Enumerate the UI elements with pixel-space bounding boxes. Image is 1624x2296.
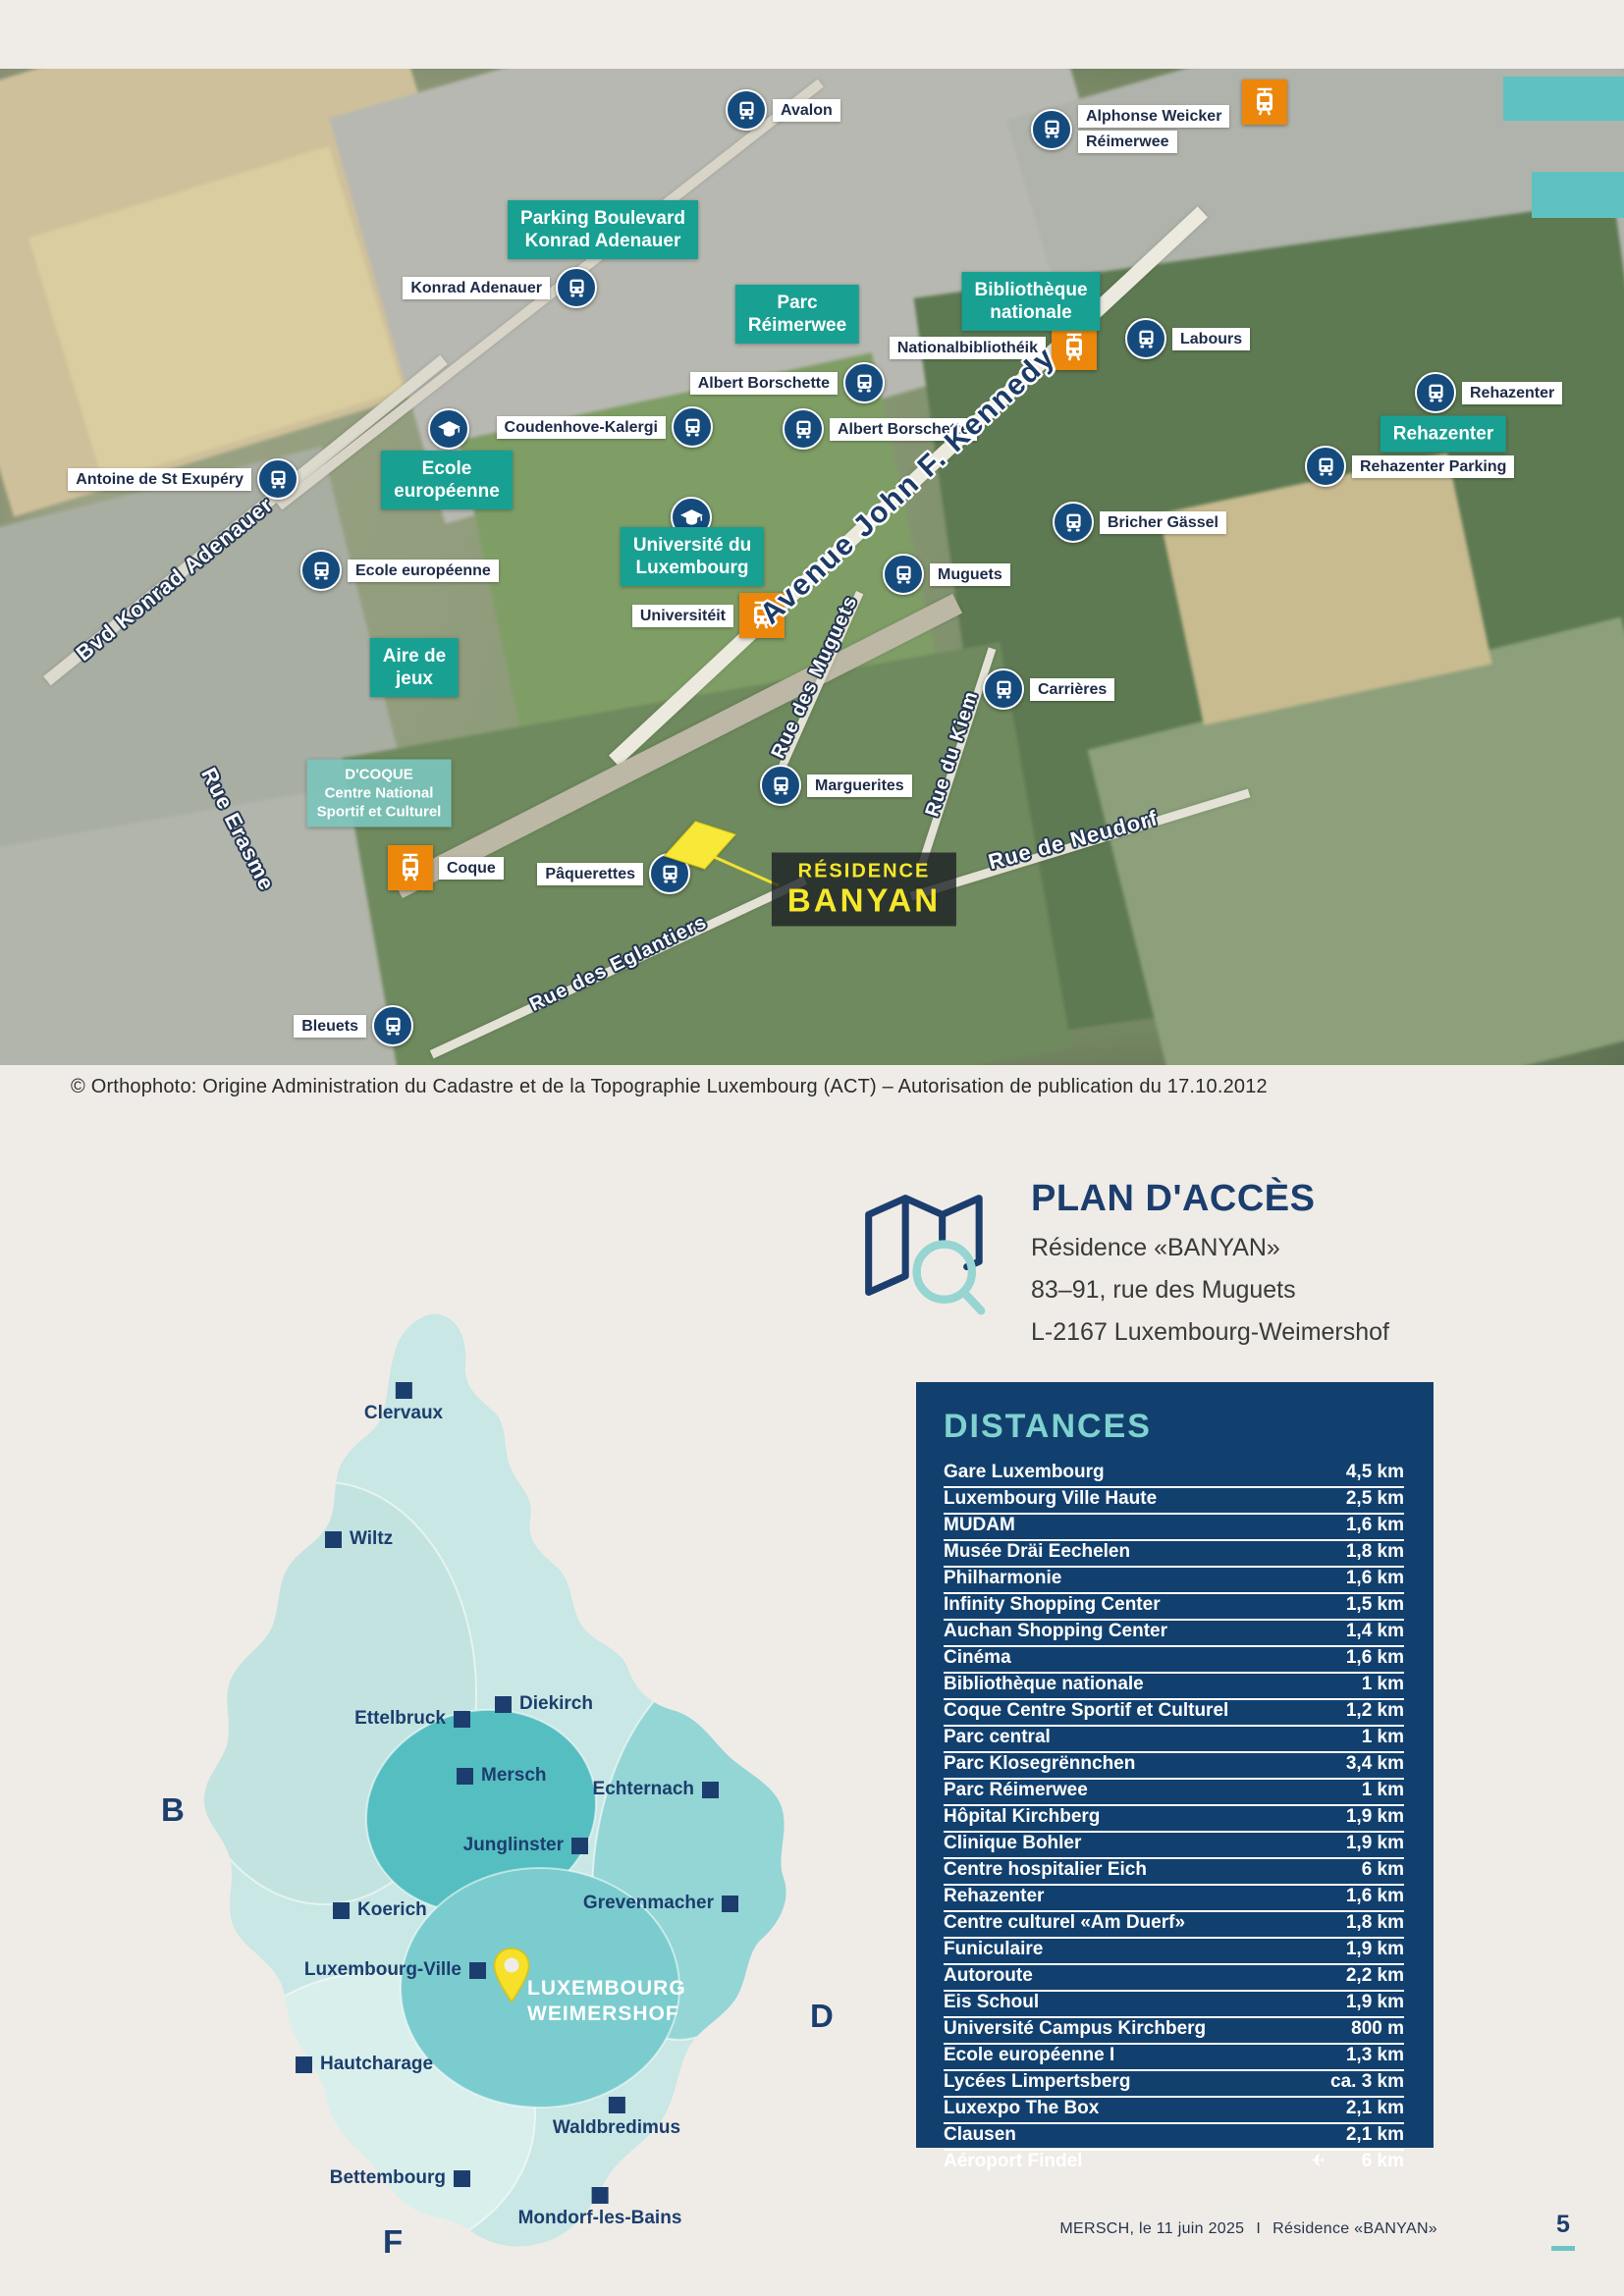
graduation-cap-icon — [437, 417, 461, 442]
distance-value: 1,8 km — [1346, 1912, 1404, 1934]
bus-stop-icon — [1053, 502, 1094, 543]
brochure-page: AvalonAlphonse WeickerRéimerweeKonrad Ad… — [0, 0, 1624, 2296]
distance-row: Luxembourg Ville Haute2,5 km — [944, 1488, 1404, 1515]
residence-banyan-label: RÉSIDENCEBANYAN — [772, 853, 956, 927]
distance-place: Auchan Shopping Center — [944, 1621, 1346, 1642]
place-label-box: Ecoleeuropéenne — [381, 451, 513, 509]
distance-place: Luxexpo The Box — [944, 2098, 1346, 2119]
bus-icon — [792, 418, 815, 441]
city-square-icon — [495, 1696, 512, 1713]
tram-icon — [1249, 86, 1280, 118]
map-stop-muguets: Muguets — [883, 554, 1010, 595]
distance-place: Centre culturel «Am Duerf» — [944, 1912, 1346, 1934]
bus-icon — [735, 99, 758, 122]
map-magnifier-icon — [852, 1184, 1000, 1332]
bus-stop-icon — [556, 267, 597, 308]
access-title: PLAN D'ACCÈS — [1031, 1178, 1461, 1220]
footer-separator: I — [1256, 2220, 1261, 2237]
distance-place: Coque Centre Sportif et Culturel — [944, 1700, 1346, 1722]
place-label-box: Aire dejeux — [370, 638, 459, 697]
distance-place: Philharmonie — [944, 1568, 1346, 1589]
stop-label-group: Alphonse WeickerRéimerwee — [1078, 105, 1229, 153]
place-label-box: D'COQUECentre NationalSportif et Culture… — [307, 760, 452, 828]
distance-place: Infinity Shopping Center — [944, 1594, 1346, 1616]
distance-place: Bibliothèque nationale — [944, 1674, 1362, 1695]
distance-value: 3,4 km — [1346, 1753, 1404, 1775]
bus-stop-icon — [300, 550, 342, 591]
city-marker-koerich: Koerich — [333, 1899, 427, 1921]
access-city-address: L-2167 Luxembourg-Weimershof — [1031, 1318, 1461, 1347]
distance-value: 1 km — [1362, 1780, 1404, 1801]
bus-stop-icon — [983, 668, 1024, 710]
map-stop-albert-borschette: Albert Borschette — [690, 362, 885, 403]
distance-row: Eis Schoul1,9 km — [944, 1992, 1404, 2018]
map-stop-alphonse-weicker: Alphonse WeickerRéimerwee — [1031, 105, 1229, 153]
bus-stop-icon — [1031, 109, 1072, 150]
distance-place: Cinéma — [944, 1647, 1346, 1669]
city-marker-mersch: Mersch — [457, 1765, 547, 1787]
bus-stop-icon — [883, 554, 924, 595]
stop-label: Bricher Gässel — [1100, 511, 1226, 534]
city-square-icon — [592, 2187, 609, 2204]
distance-place: Luxembourg Ville Haute — [944, 1488, 1346, 1510]
distance-row: Lycées Limpertsbergca. 3 km — [944, 2071, 1404, 2098]
city-label: Koerich — [357, 1899, 427, 1921]
stop-label: Marguerites — [807, 774, 912, 797]
stop-label: Avalon — [773, 99, 840, 122]
distance-row: Ecole européenne I1,3 km — [944, 2045, 1404, 2071]
city-label: Clervaux — [364, 1403, 443, 1424]
city-marker-wiltz: Wiltz — [325, 1528, 393, 1550]
city-square-icon — [333, 1902, 350, 1919]
tram-stop-icon — [1242, 80, 1287, 125]
distance-row: Gare Luxembourg4,5 km — [944, 1462, 1404, 1488]
stop-label: Alphonse Weicker — [1078, 105, 1229, 128]
bus-stop-icon — [1415, 372, 1456, 413]
access-plan-section: PLAN D'ACCÈS Résidence «BANYAN» 83–91, r… — [852, 1178, 1461, 1361]
city-marker-ettelbruck: Ettelbruck — [354, 1708, 470, 1730]
bus-icon — [566, 277, 588, 299]
distance-place: Funiculaire — [944, 1939, 1346, 1960]
stop-label: Coque — [439, 857, 504, 880]
distance-place: Centre hospitalier Eich — [944, 1859, 1362, 1881]
map-stop-tram — [1242, 80, 1287, 125]
distance-value: 6 km — [1362, 2151, 1404, 2172]
map-stop-coudenhove-kalergi: Coudenhove-Kalergi — [497, 406, 713, 448]
city-square-icon — [396, 1382, 412, 1399]
page-number: 5 — [1549, 2211, 1577, 2239]
city-square-icon — [325, 1531, 342, 1548]
distance-place: Parc Réimerwee — [944, 1780, 1362, 1801]
decorative-teal-block — [1532, 172, 1624, 218]
distance-place: Université Campus Kirchberg — [944, 2018, 1351, 2040]
city-marker-echternach: Echternach — [593, 1779, 719, 1800]
map-copyright: © Orthophoto: Origine Administration du … — [71, 1076, 1268, 1098]
distance-value: 1 km — [1362, 1674, 1404, 1695]
city-label: Bettembourg — [330, 2167, 446, 2189]
distance-place: Hôpital Kirchberg — [944, 1806, 1346, 1828]
distance-row: Rehazenter1,6 km — [944, 1886, 1404, 1912]
bus-stop-icon — [672, 406, 713, 448]
city-square-icon — [722, 1896, 738, 1912]
distance-place: Lycées Limpertsberg — [944, 2071, 1330, 2093]
stop-label: Coudenhove-Kalergi — [497, 416, 666, 439]
distance-row: Philharmonie1,6 km — [944, 1568, 1404, 1594]
footer-date: MERSCH, le 11 juin 2025 — [1059, 2220, 1244, 2237]
distance-value: 1,9 km — [1346, 1939, 1404, 1960]
distance-place: Clinique Bohler — [944, 1833, 1346, 1854]
tram-icon — [1058, 332, 1090, 363]
city-marker-grevenmacher: Grevenmacher — [583, 1893, 738, 1914]
city-marker-hautcharage: Hautcharage — [296, 2054, 433, 2075]
distance-row: Bibliothèque nationale1 km — [944, 1674, 1404, 1700]
tram-stop-icon — [388, 845, 433, 890]
distance-value: 1 km — [1362, 1727, 1404, 1748]
distance-place: Clausen — [944, 2124, 1346, 2146]
bus-icon — [770, 774, 792, 797]
map-stop-nationalbiblioth-ik: Nationalbibliothéik — [890, 325, 1097, 370]
distance-place: Eis Schoul — [944, 1992, 1346, 2013]
school-icon-marker — [428, 408, 469, 450]
distance-row: Luxexpo The Box2,1 km — [944, 2098, 1404, 2124]
distance-value: 800 m — [1351, 2018, 1404, 2040]
luxembourg-silhouette — [137, 1301, 825, 2282]
distance-place: Musée Dräi Eechelen — [944, 1541, 1346, 1563]
distance-value: ca. 3 km — [1330, 2071, 1404, 2093]
stop-label: Albert Borschette — [690, 372, 838, 395]
city-label: Grevenmacher — [583, 1893, 714, 1914]
distance-row: Autoroute2,2 km — [944, 1965, 1404, 1992]
city-label: Waldbredimus — [553, 2117, 680, 2139]
distance-value: 1,6 km — [1346, 1568, 1404, 1589]
city-square-icon — [469, 1962, 486, 1979]
map-stop-avalon: Avalon — [726, 89, 840, 131]
distance-row: Hôpital Kirchberg1,9 km — [944, 1806, 1404, 1833]
stop-label: Pâquerettes — [537, 863, 643, 885]
bus-stop-icon — [760, 765, 801, 806]
map-stop-marguerites: Marguerites — [760, 765, 912, 806]
tram-icon — [395, 852, 426, 883]
stop-label: Rehazenter Parking — [1352, 455, 1514, 478]
stop-label: Réimerwee — [1078, 131, 1177, 153]
distance-value: 1,9 km — [1346, 1833, 1404, 1854]
bus-stop-icon — [372, 1005, 413, 1046]
bus-stop-icon — [1125, 318, 1166, 359]
map-stop-rehazenter: Rehazenter — [1415, 372, 1562, 413]
bus-icon — [1135, 328, 1158, 350]
city-marker-bettembourg: Bettembourg — [330, 2167, 470, 2189]
distance-row: Musée Dräi Eechelen1,8 km — [944, 1541, 1404, 1568]
aerial-orthophoto-map: AvalonAlphonse WeickerRéimerweeKonrad Ad… — [0, 69, 1624, 1065]
access-street-address: 83–91, rue des Muguets — [1031, 1276, 1461, 1305]
bus-icon — [659, 863, 681, 885]
stop-label: Ecole européenne — [348, 560, 499, 582]
distance-value: 1,3 km — [1346, 2045, 1404, 2066]
city-label: Luxembourg-Ville — [304, 1959, 461, 1981]
city-square-icon — [608, 2097, 624, 2113]
distance-place: Autoroute — [944, 1965, 1346, 1987]
luxembourg-country-map: ClervauxWiltzEttelbruckDiekirchEchternac… — [137, 1301, 825, 2282]
bus-stop-icon — [1305, 446, 1346, 487]
distance-value: 1,8 km — [1346, 1541, 1404, 1563]
distance-row: Centre culturel «Am Duerf»1,8 km — [944, 1912, 1404, 1939]
map-stop-p-querettes: Pâquerettes — [537, 853, 690, 894]
distance-value: 1,6 km — [1346, 1647, 1404, 1669]
map-stop-coque: Coque — [388, 845, 504, 890]
bus-stop-icon — [726, 89, 767, 131]
distance-place: MUDAM — [944, 1515, 1346, 1536]
footer-text: MERSCH, le 11 juin 2025IRésidence «BANYA… — [0, 2220, 1437, 2238]
distance-row: Infinity Shopping Center1,5 km — [944, 1594, 1404, 1621]
city-marker-waldbredimus: Waldbredimus — [553, 2097, 680, 2139]
stop-label: Antoine de St Exupéry — [68, 468, 251, 491]
city-square-icon — [702, 1782, 719, 1798]
distance-row: Parc Réimerwee1 km — [944, 1780, 1404, 1806]
city-square-icon — [296, 2056, 312, 2073]
distance-place: Parc Klosegrënnchen — [944, 1753, 1346, 1775]
decorative-teal-block — [1503, 77, 1624, 121]
city-square-icon — [454, 2170, 470, 2187]
bus-icon — [267, 468, 290, 491]
distances-title: DISTANCES — [944, 1408, 1404, 1446]
distance-value: 1,6 km — [1346, 1886, 1404, 1907]
stop-label: Rehazenter — [1462, 382, 1562, 404]
distance-value: 4,5 km — [1346, 1462, 1404, 1483]
distance-row: Clinique Bohler1,9 km — [944, 1833, 1404, 1859]
distances-panel: DISTANCES Gare Luxembourg4,5 kmLuxembour… — [916, 1382, 1434, 2148]
map-stop-ecole-europ-enne: Ecole européenne — [300, 550, 499, 591]
distance-row: Funiculaire1,9 km — [944, 1939, 1404, 1965]
city-label: Wiltz — [350, 1528, 393, 1550]
distance-row: MUDAM1,6 km — [944, 1515, 1404, 1541]
distance-value: 2,2 km — [1346, 1965, 1404, 1987]
place-label-box: Rehazenter — [1380, 416, 1506, 453]
residence-label-line2: BANYAN — [787, 883, 941, 919]
distance-value: 1,5 km — [1346, 1594, 1404, 1616]
place-label-box: Parking BoulevardKonrad Adenauer — [508, 200, 698, 259]
distance-row: Aéroport Findel✈6 km — [944, 2151, 1404, 2175]
page-number-accent-bar — [1551, 2246, 1575, 2251]
city-label: Echternach — [593, 1779, 694, 1800]
city-square-icon — [571, 1838, 588, 1854]
bus-icon — [681, 416, 704, 439]
distance-place: Aéroport Findel — [944, 2151, 1310, 2172]
distance-value: 2,5 km — [1346, 1488, 1404, 1510]
city-marker-clervaux: Clervaux — [364, 1382, 443, 1424]
distance-row: Centre hospitalier Eich6 km — [944, 1859, 1404, 1886]
map-stop-bricher-g-ssel: Bricher Gässel — [1053, 502, 1226, 543]
city-label: Junglinster — [463, 1835, 564, 1856]
distance-value: 1,9 km — [1346, 1806, 1404, 1828]
distance-value: 2,1 km — [1346, 2124, 1404, 2146]
distance-row: Cinéma1,6 km — [944, 1647, 1404, 1674]
place-label-box: Bibliothèquenationale — [961, 272, 1100, 331]
weimershof-pin — [492, 1947, 531, 2008]
bus-icon — [993, 678, 1015, 701]
bus-icon — [1062, 511, 1085, 534]
distance-value: 1,2 km — [1346, 1700, 1404, 1722]
map-stop-bleuets: Bleuets — [294, 1005, 413, 1046]
distance-row: Parc Klosegrënnchen3,4 km — [944, 1753, 1404, 1780]
stop-label: Universitéit — [632, 605, 733, 627]
graduation-cap-icon — [679, 506, 704, 530]
map-stop-konrad-adenauer: Konrad Adenauer — [403, 267, 597, 308]
distance-value: 1,6 km — [1346, 1515, 1404, 1536]
distance-row: Coque Centre Sportif et Culturel1,2 km — [944, 1700, 1404, 1727]
distance-row: Université Campus Kirchberg800 m — [944, 2018, 1404, 2045]
city-square-icon — [454, 1711, 470, 1728]
bus-icon — [893, 563, 915, 586]
bus-stop-icon — [843, 362, 885, 403]
bus-icon — [1041, 118, 1063, 140]
distance-place: Rehazenter — [944, 1886, 1346, 1907]
distances-table: Gare Luxembourg4,5 kmLuxembourg Ville Ha… — [944, 1462, 1404, 2175]
city-label: Diekirch — [519, 1693, 593, 1715]
bus-icon — [310, 560, 333, 582]
distance-value: 6 km — [1362, 1859, 1404, 1881]
region-letter-b: B — [161, 1791, 185, 1829]
location-pin-icon — [492, 1947, 531, 2003]
distance-value: 2,1 km — [1346, 2098, 1404, 2119]
place-label-box: ParcRéimerwee — [735, 285, 859, 344]
bus-icon — [1425, 382, 1447, 404]
distance-row: Auchan Shopping Center1,4 km — [944, 1621, 1404, 1647]
stop-label: Konrad Adenauer — [403, 277, 550, 299]
residence-label-line1: RÉSIDENCE — [787, 861, 941, 883]
stop-label: Carrières — [1030, 678, 1114, 701]
stop-label: Muguets — [930, 563, 1010, 586]
bus-icon — [382, 1015, 405, 1038]
place-label-box: Université duLuxembourg — [621, 527, 764, 586]
distance-place: Ecole européenne I — [944, 2045, 1346, 2066]
city-marker-luxembourg-ville: Luxembourg-Ville — [304, 1959, 486, 1981]
stop-label: Bleuets — [294, 1015, 366, 1038]
city-marker-junglinster: Junglinster — [463, 1835, 588, 1856]
weimershof-label: LUXEMBOURGWEIMERSHOF — [527, 1976, 686, 2027]
city-label: Hautcharage — [320, 2054, 433, 2075]
city-marker-diekirch: Diekirch — [495, 1693, 593, 1715]
distance-row: Clausen2,1 km — [944, 2124, 1404, 2151]
footer-document-name: Résidence «BANYAN» — [1272, 2220, 1437, 2237]
stop-label: Labours — [1172, 328, 1250, 350]
city-label: Mersch — [481, 1765, 547, 1787]
city-label: Ettelbruck — [354, 1708, 446, 1730]
bus-icon — [853, 372, 876, 395]
region-letter-d: D — [810, 1998, 834, 2035]
airplane-icon: ✈ — [1310, 2151, 1325, 2171]
city-square-icon — [457, 1768, 473, 1785]
distance-row: Parc central1 km — [944, 1727, 1404, 1753]
bus-icon — [1315, 455, 1337, 478]
distance-place: Parc central — [944, 1727, 1362, 1748]
map-stop-carri-res: Carrières — [983, 668, 1114, 710]
distance-value: 1,4 km — [1346, 1621, 1404, 1642]
bus-stop-icon — [783, 408, 824, 450]
map-stop-labours: Labours — [1125, 318, 1250, 359]
distance-place: Gare Luxembourg — [944, 1462, 1346, 1483]
distance-value: 1,9 km — [1346, 1992, 1404, 2013]
access-residence-name: Résidence «BANYAN» — [1031, 1234, 1461, 1262]
